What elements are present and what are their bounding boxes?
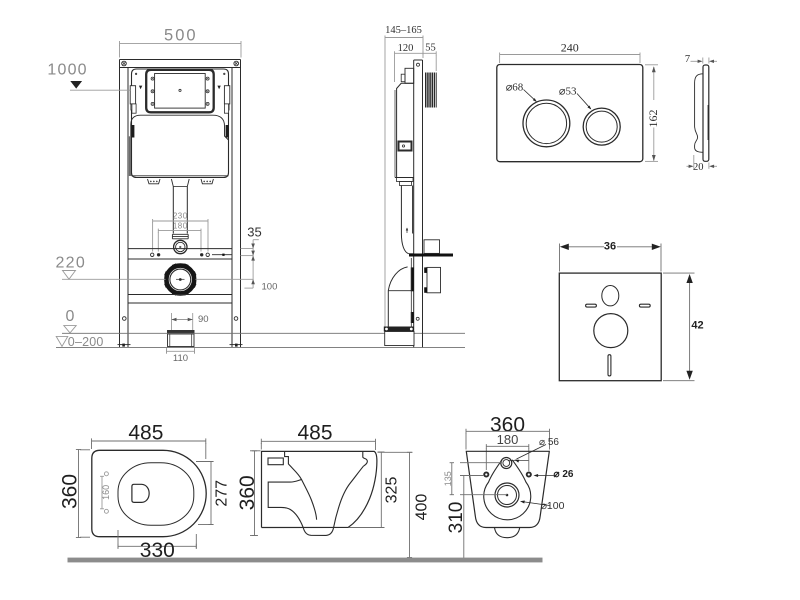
svg-text:20: 20: [693, 162, 704, 173]
svg-text:0: 0: [66, 308, 75, 325]
svg-text:180: 180: [173, 221, 188, 230]
svg-text:135: 135: [443, 471, 453, 486]
svg-text:⌀ 26: ⌀ 26: [554, 469, 574, 480]
svg-text:100: 100: [262, 281, 278, 292]
svg-text:360: 360: [236, 475, 259, 510]
svg-text:277: 277: [213, 480, 230, 507]
svg-text:⌀100: ⌀100: [541, 500, 565, 512]
svg-text:220: 220: [55, 254, 86, 271]
svg-text:360: 360: [58, 474, 81, 509]
svg-text:35: 35: [247, 225, 261, 240]
svg-text:500: 500: [164, 27, 198, 45]
svg-text:180: 180: [497, 432, 519, 447]
svg-text:55: 55: [425, 43, 436, 54]
svg-text:42: 42: [691, 319, 703, 331]
svg-text:1000: 1000: [47, 62, 87, 79]
svg-text:325: 325: [383, 477, 400, 504]
svg-text:120: 120: [398, 43, 414, 54]
svg-text:36: 36: [604, 241, 616, 253]
svg-text:145–165: 145–165: [385, 25, 422, 36]
svg-text:7: 7: [685, 54, 690, 65]
svg-text:240: 240: [561, 41, 579, 55]
svg-text:⌀53: ⌀53: [559, 85, 577, 97]
svg-text:0–200: 0–200: [68, 335, 104, 349]
svg-text:162: 162: [646, 110, 660, 128]
svg-text:⌀68: ⌀68: [506, 82, 524, 94]
svg-text:230: 230: [173, 211, 188, 220]
svg-text:310: 310: [446, 502, 467, 534]
svg-text:160: 160: [101, 485, 111, 500]
svg-text:90: 90: [198, 314, 209, 325]
svg-text:110: 110: [173, 353, 188, 364]
svg-text:400: 400: [414, 494, 431, 521]
